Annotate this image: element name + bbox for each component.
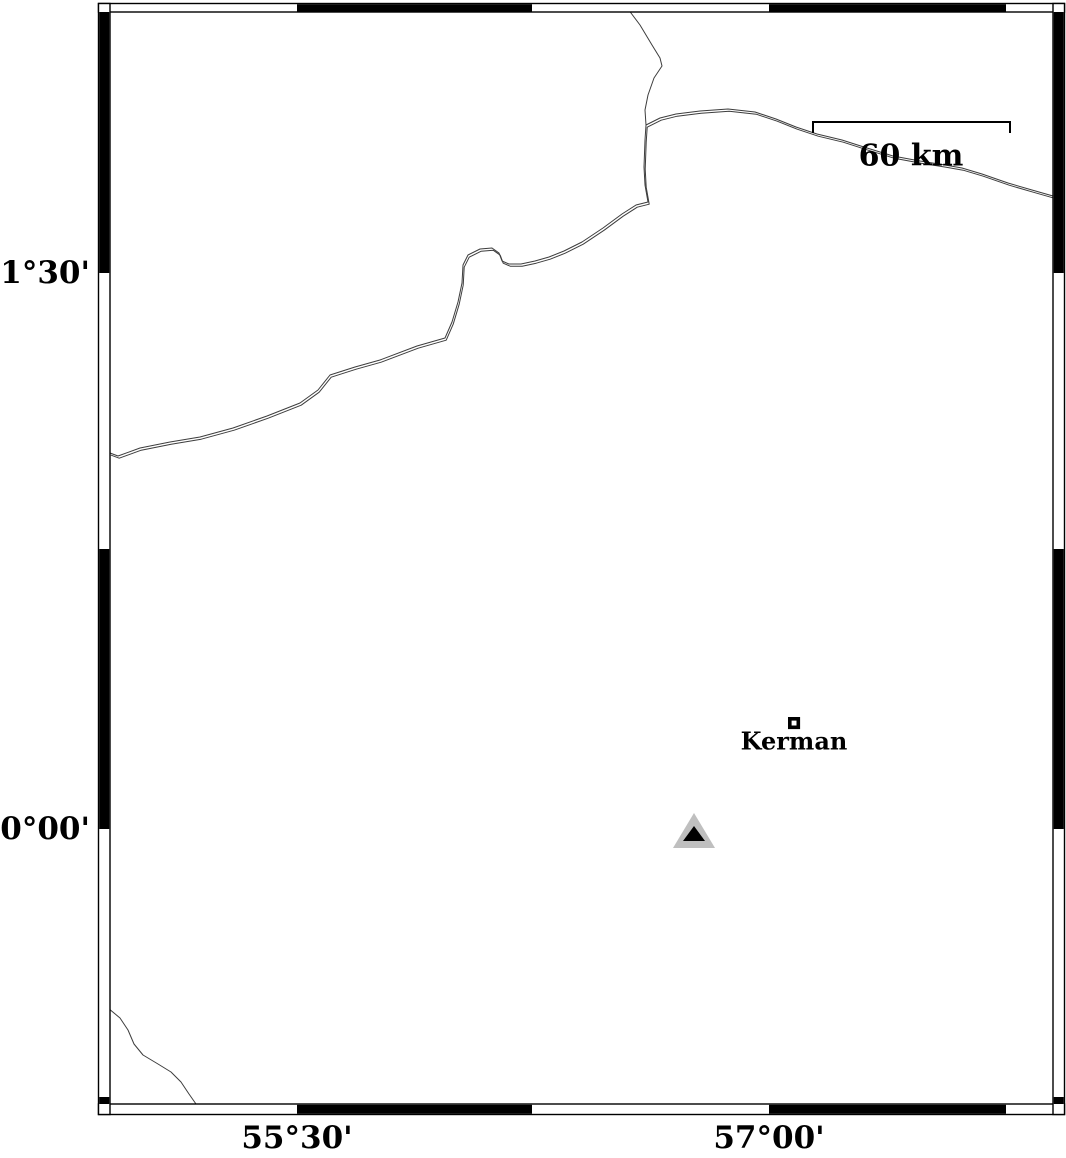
frame-tick-right-2 — [1054, 549, 1064, 829]
frame-tick-right-1 — [1054, 12, 1064, 273]
lat-label-31-30: 31°30' — [0, 255, 90, 291]
frame-tick-top-2 — [769, 4, 1006, 11]
frame-tick-left-3 — [99, 1097, 109, 1104]
map-figure: 31°30' 30°00' 55°30' 57°00' 60 km Kerman — [0, 0, 1066, 1154]
lat-label-30-00: 30°00' — [0, 811, 90, 847]
lon-label-55-30: 55°30' — [241, 1120, 352, 1154]
frame-tick-bottom-1 — [297, 1105, 532, 1114]
frame-tick-top-1 — [297, 4, 532, 11]
lon-label-57-00: 57°00' — [713, 1120, 824, 1154]
city-label-kerman: Kerman — [741, 727, 848, 756]
frame-tick-left-1 — [99, 12, 109, 273]
map-canvas: 31°30' 30°00' 55°30' 57°00' 60 km Kerman — [0, 0, 1066, 1154]
frame-tick-left-2 — [99, 549, 109, 829]
frame-tick-right-3 — [1054, 1097, 1064, 1104]
frame-tick-bottom-2 — [769, 1105, 1006, 1114]
scale-bar-label: 60 km — [859, 139, 964, 174]
